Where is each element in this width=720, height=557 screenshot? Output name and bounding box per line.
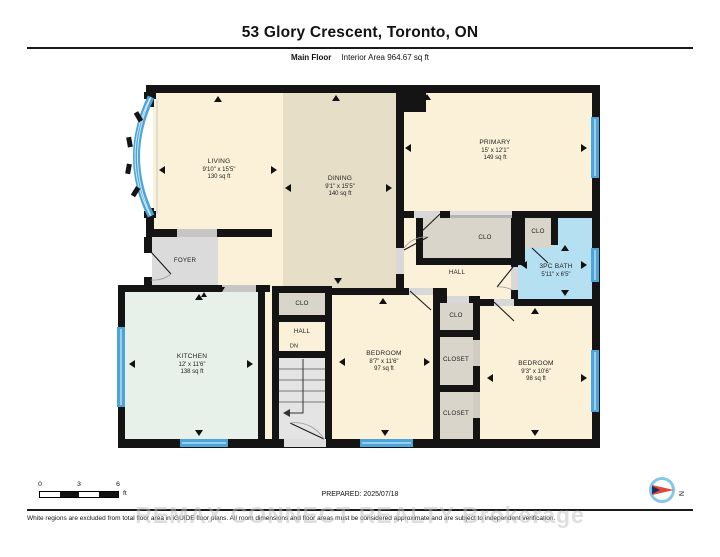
room-label-kitchen: KITCHEN 12' x 11'6" 138 sq ft bbox=[177, 353, 207, 377]
room-fills bbox=[125, 92, 592, 441]
room-label-bedroom-right: BEDROOM 9'3" x 10'6" 98 sq ft bbox=[518, 360, 553, 384]
scale-tick-0: 0 bbox=[38, 481, 42, 488]
scale-tick-6: 6 bbox=[116, 481, 120, 488]
room-label-foyer: FOYER bbox=[174, 257, 196, 265]
prepared-date: PREPARED: 2025/07/18 bbox=[0, 491, 720, 498]
room-label-clo-hall: CLO bbox=[295, 300, 308, 308]
room-label-clo-mid: CLO bbox=[449, 312, 462, 320]
floorplan-page: 53 Glory Crescent, Toronto, ON Main Floo… bbox=[0, 0, 720, 557]
room-label-primary: PRIMARY 15' x 12'1" 149 sq ft bbox=[479, 139, 510, 163]
room-label-closet-2: CLOSET bbox=[443, 410, 469, 418]
room-label-hall-main: HALL bbox=[449, 269, 465, 277]
room-label-closet-1: CLOSET bbox=[443, 356, 469, 364]
scale-tick-3: 3 bbox=[77, 481, 81, 488]
room-label-bath: 3PC BATH 5'11" x 6'5" bbox=[539, 263, 572, 279]
compass-icon: N bbox=[651, 479, 685, 502]
room-label-hall-small: HALL bbox=[294, 328, 310, 336]
room-label-living: LIVING 9'10" x 15'5" 130 sq ft bbox=[203, 158, 236, 182]
room-label-clo-primary: CLO bbox=[478, 234, 491, 242]
room-label-dining: DINING 9'1" x 15'5" 140 sq ft bbox=[325, 175, 355, 199]
footer-divider bbox=[27, 509, 693, 511]
room-label-dn: DN bbox=[290, 343, 298, 350]
disclaimer-text: White regions are excluded from total fl… bbox=[27, 515, 693, 522]
room-label-bedroom-mid: BEDROOM 8'7" x 11'6" 97 sq ft bbox=[366, 350, 401, 374]
bay-window-icon bbox=[125, 97, 157, 216]
room-label-clo-bath: CLO bbox=[531, 228, 544, 236]
floorplan-drawing: N bbox=[0, 0, 720, 557]
